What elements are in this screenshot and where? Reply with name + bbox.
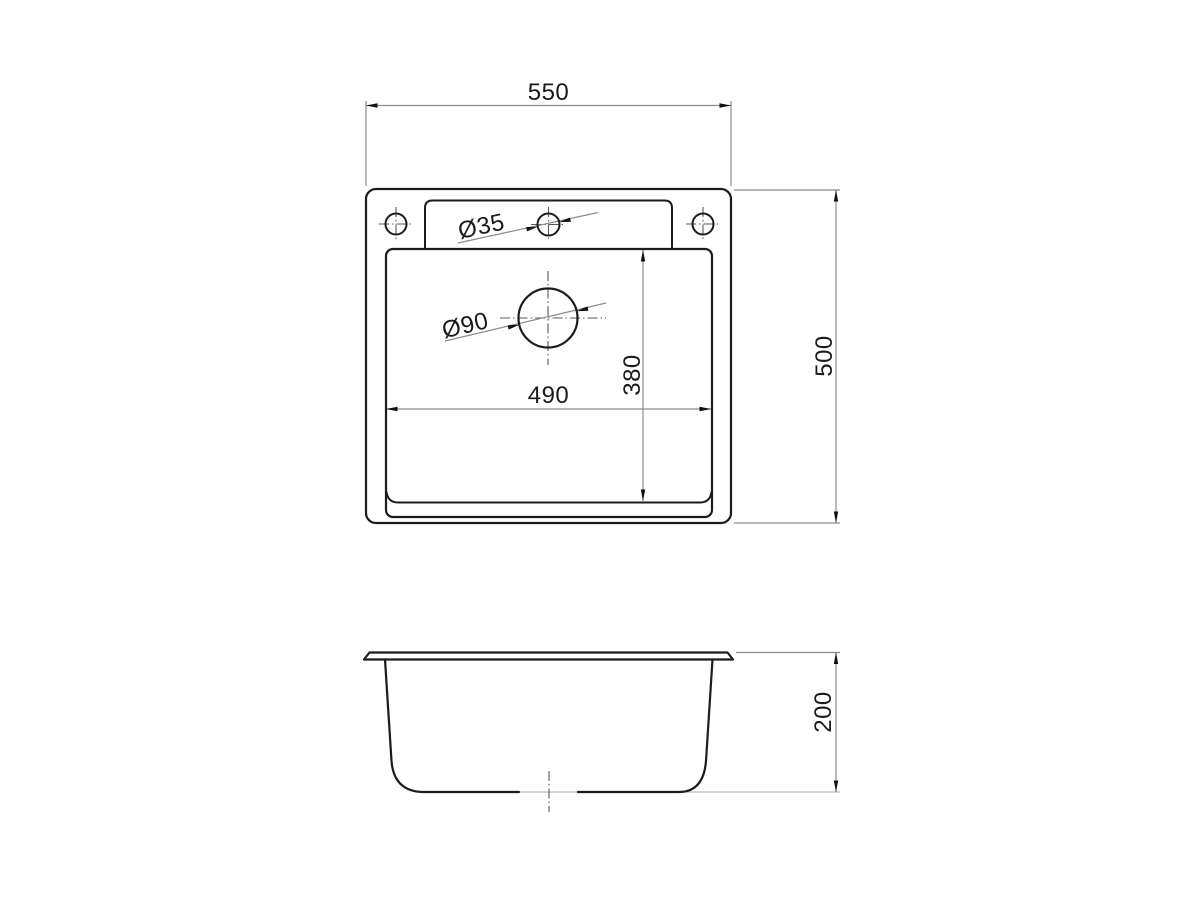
dim-bowl-height: 200 — [519, 653, 840, 793]
dim-bowl-height-label: 200 — [810, 691, 837, 733]
arrow-up — [834, 190, 838, 202]
drain-hole-label: Ø90 — [439, 307, 491, 344]
arrow-up — [834, 653, 838, 665]
arrow-down — [834, 781, 838, 793]
bowl-bottom-edge — [387, 492, 712, 503]
faucet-hole-label: Ø35 — [456, 208, 508, 244]
dim-overall-width: 550 — [366, 79, 731, 186]
dim-overall-depth-label: 500 — [811, 335, 838, 377]
arrow-left — [386, 407, 398, 411]
drain-hole: Ø90 — [439, 271, 606, 365]
arrow-down — [834, 512, 838, 524]
side-view: 200 — [364, 653, 840, 813]
rim-profile — [364, 653, 733, 660]
arrow-right — [700, 407, 712, 411]
sink-outer-rim — [366, 189, 731, 523]
arrow-left — [366, 103, 378, 107]
dim-bowl-width: 490 — [386, 382, 711, 411]
top-view: 550 500 490 380 — [366, 79, 840, 523]
arrow-up — [641, 250, 645, 262]
mounting-hole-right — [686, 207, 721, 241]
dim-bowl-depth: 380 — [619, 250, 646, 501]
technical-drawing-canvas: 550 500 490 380 — [0, 0, 1200, 900]
dim-overall-depth: 500 — [734, 190, 840, 523]
faucet-hole: Ø35 — [456, 207, 598, 245]
dim-bowl-depth-label: 380 — [619, 354, 646, 396]
mounting-hole-left — [379, 207, 414, 241]
dim-bowl-width-label: 490 — [528, 382, 570, 409]
drawing-sheet: 550 500 490 380 — [0, 0, 1200, 900]
arrow-right — [720, 103, 732, 107]
arrow-down — [641, 490, 645, 502]
dim-overall-width-label: 550 — [528, 79, 570, 106]
